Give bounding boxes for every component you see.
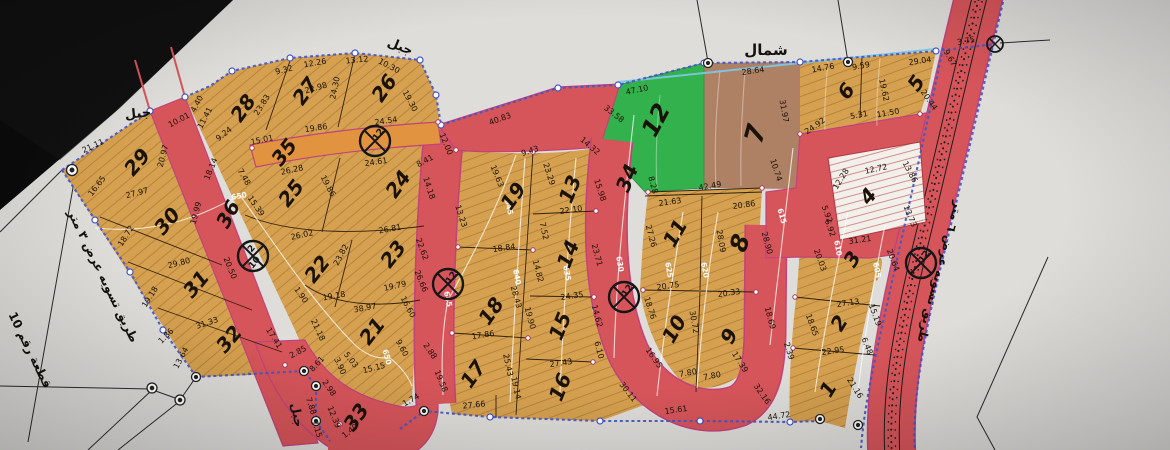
cadastral-map-svg: 21.114.4011.419.2422.989.3212.2613.1210.… — [0, 0, 1170, 450]
map-canvas[interactable]: 21.114.4011.419.2422.989.3212.2613.1210.… — [0, 0, 1170, 450]
map-label: جبل — [124, 105, 152, 123]
map-label: شمال — [744, 41, 787, 59]
